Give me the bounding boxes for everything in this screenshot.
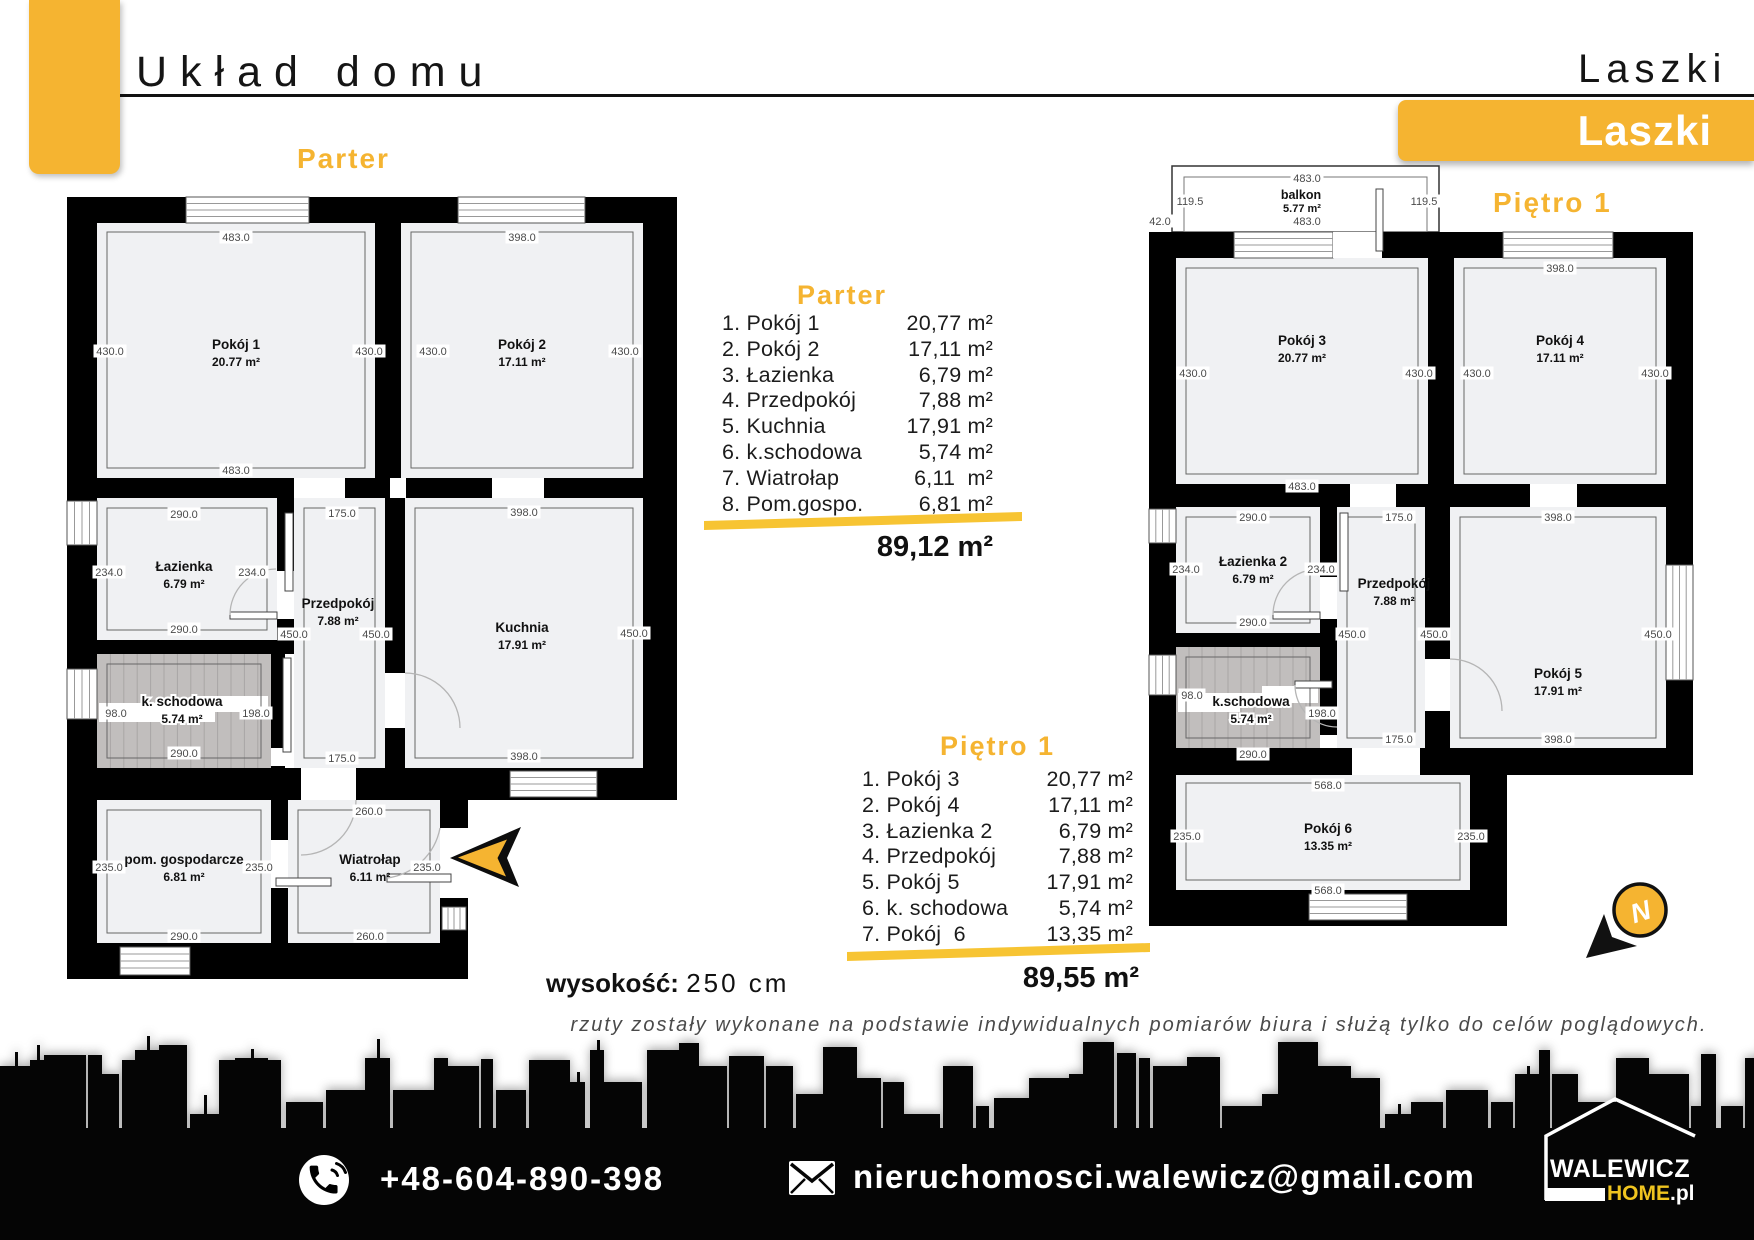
svg-text:Łazienka: Łazienka — [155, 559, 213, 574]
svg-text:290.0: 290.0 — [170, 624, 198, 636]
svg-text:98.0: 98.0 — [1181, 690, 1202, 702]
svg-text:k. schodowa: k. schodowa — [141, 694, 223, 709]
svg-text:119.5: 119.5 — [1411, 196, 1438, 208]
svg-text:290.0: 290.0 — [170, 931, 198, 943]
svg-text:430.0: 430.0 — [1179, 368, 1207, 380]
svg-text:483.0: 483.0 — [222, 232, 250, 244]
svg-text:290.0: 290.0 — [1239, 512, 1267, 524]
svg-text:98.0: 98.0 — [105, 708, 126, 720]
svg-text:Łazienka 2: Łazienka 2 — [1219, 554, 1287, 569]
svg-text:20.77 m²: 20.77 m² — [212, 355, 260, 369]
svg-text:HOME.pl: HOME.pl — [1607, 1182, 1695, 1205]
svg-text:17.11 m²: 17.11 m² — [498, 355, 545, 369]
svg-text:234.0: 234.0 — [1307, 564, 1335, 576]
svg-text:398.0: 398.0 — [510, 751, 538, 763]
svg-text:5.74 m²: 5.74 m² — [1230, 712, 1271, 726]
svg-text:198.0: 198.0 — [242, 708, 270, 720]
svg-text:6.81 m²: 6.81 m² — [163, 870, 204, 884]
svg-text:450.0: 450.0 — [280, 629, 308, 641]
svg-text:450.0: 450.0 — [1644, 629, 1672, 641]
svg-text:Pokój 6: Pokój 6 — [1304, 821, 1353, 836]
svg-text:17.11 m²: 17.11 m² — [1536, 351, 1583, 365]
svg-text:Przedpokój: Przedpokój — [1358, 576, 1431, 591]
svg-text:483.0: 483.0 — [222, 465, 250, 477]
svg-text:175.0: 175.0 — [328, 508, 356, 520]
svg-text:Pokój 1: Pokój 1 — [212, 337, 261, 352]
svg-text:398.0: 398.0 — [510, 507, 538, 519]
svg-text:483.0: 483.0 — [1293, 173, 1321, 185]
svg-text:290.0: 290.0 — [1239, 617, 1267, 629]
svg-text:430.0: 430.0 — [96, 346, 124, 358]
svg-text:260.0: 260.0 — [356, 931, 384, 943]
svg-text:175.0: 175.0 — [1385, 734, 1413, 746]
svg-text:235.0: 235.0 — [413, 862, 441, 874]
svg-text:Pokój 2: Pokój 2 — [498, 337, 546, 352]
svg-text:17.91 m²: 17.91 m² — [498, 638, 546, 652]
svg-text:234.0: 234.0 — [1172, 564, 1200, 576]
svg-text:430.0: 430.0 — [1405, 368, 1433, 380]
svg-text:Wiatrołap: Wiatrołap — [339, 852, 400, 867]
svg-text:Przedpokój: Przedpokój — [302, 596, 375, 611]
svg-text:235.0: 235.0 — [1457, 831, 1485, 843]
svg-text:290.0: 290.0 — [170, 748, 198, 760]
svg-text:398.0: 398.0 — [1544, 734, 1572, 746]
svg-text:17.91 m²: 17.91 m² — [1534, 684, 1582, 698]
svg-text:483.0: 483.0 — [1293, 216, 1321, 228]
svg-text:398.0: 398.0 — [508, 232, 536, 244]
svg-text:5.77 m²: 5.77 m² — [1283, 203, 1321, 215]
svg-text:235.0: 235.0 — [95, 862, 123, 874]
svg-text:568.0: 568.0 — [1314, 885, 1342, 897]
svg-text:pom. gospodarcze: pom. gospodarcze — [124, 852, 244, 867]
svg-text:235.0: 235.0 — [1173, 831, 1201, 843]
svg-text:Pokój 4: Pokój 4 — [1536, 333, 1585, 348]
svg-text:483.0: 483.0 — [1288, 481, 1316, 493]
svg-text:119.5: 119.5 — [1177, 196, 1204, 208]
svg-text:198.0: 198.0 — [1308, 708, 1336, 720]
svg-text:7.88 m²: 7.88 m² — [1373, 594, 1414, 608]
svg-text:7.88 m²: 7.88 m² — [317, 614, 358, 628]
svg-text:WALEWICZ: WALEWICZ — [1550, 1155, 1690, 1183]
svg-text:430.0: 430.0 — [1641, 368, 1669, 380]
svg-text:175.0: 175.0 — [1385, 512, 1413, 524]
svg-text:235.0: 235.0 — [245, 862, 273, 874]
svg-text:450.0: 450.0 — [362, 629, 390, 641]
svg-text:6.79 m²: 6.79 m² — [163, 577, 204, 591]
svg-text:568.0: 568.0 — [1314, 780, 1342, 792]
svg-text:290.0: 290.0 — [1239, 749, 1267, 761]
svg-text:5.74 m²: 5.74 m² — [161, 712, 202, 726]
svg-text:balkon: balkon — [1281, 188, 1321, 202]
svg-text:6.79 m²: 6.79 m² — [1232, 572, 1273, 586]
svg-text:430.0: 430.0 — [419, 346, 447, 358]
svg-text:Kuchnia: Kuchnia — [495, 620, 549, 635]
svg-text:450.0: 450.0 — [620, 628, 648, 640]
svg-text:6.11 m²: 6.11 m² — [350, 870, 391, 884]
svg-text:260.0: 260.0 — [355, 806, 383, 818]
svg-text:398.0: 398.0 — [1546, 263, 1574, 275]
svg-text:Pokój 5: Pokój 5 — [1534, 666, 1583, 681]
svg-text:450.0: 450.0 — [1338, 629, 1366, 641]
svg-text:13.35 m²: 13.35 m² — [1304, 839, 1352, 853]
svg-text:42.0: 42.0 — [1149, 216, 1170, 228]
svg-text:430.0: 430.0 — [355, 346, 383, 358]
svg-text:Pokój 3: Pokój 3 — [1278, 333, 1327, 348]
svg-text:450.0: 450.0 — [1420, 629, 1448, 641]
svg-text:20.77 m²: 20.77 m² — [1278, 351, 1326, 365]
svg-text:234.0: 234.0 — [95, 567, 123, 579]
svg-text:290.0: 290.0 — [170, 509, 198, 521]
svg-text:430.0: 430.0 — [1463, 368, 1491, 380]
svg-text:k.schodowa: k.schodowa — [1212, 694, 1290, 709]
svg-text:175.0: 175.0 — [328, 753, 356, 765]
svg-text:398.0: 398.0 — [1544, 512, 1572, 524]
svg-text:430.0: 430.0 — [611, 346, 639, 358]
svg-text:234.0: 234.0 — [238, 567, 266, 579]
